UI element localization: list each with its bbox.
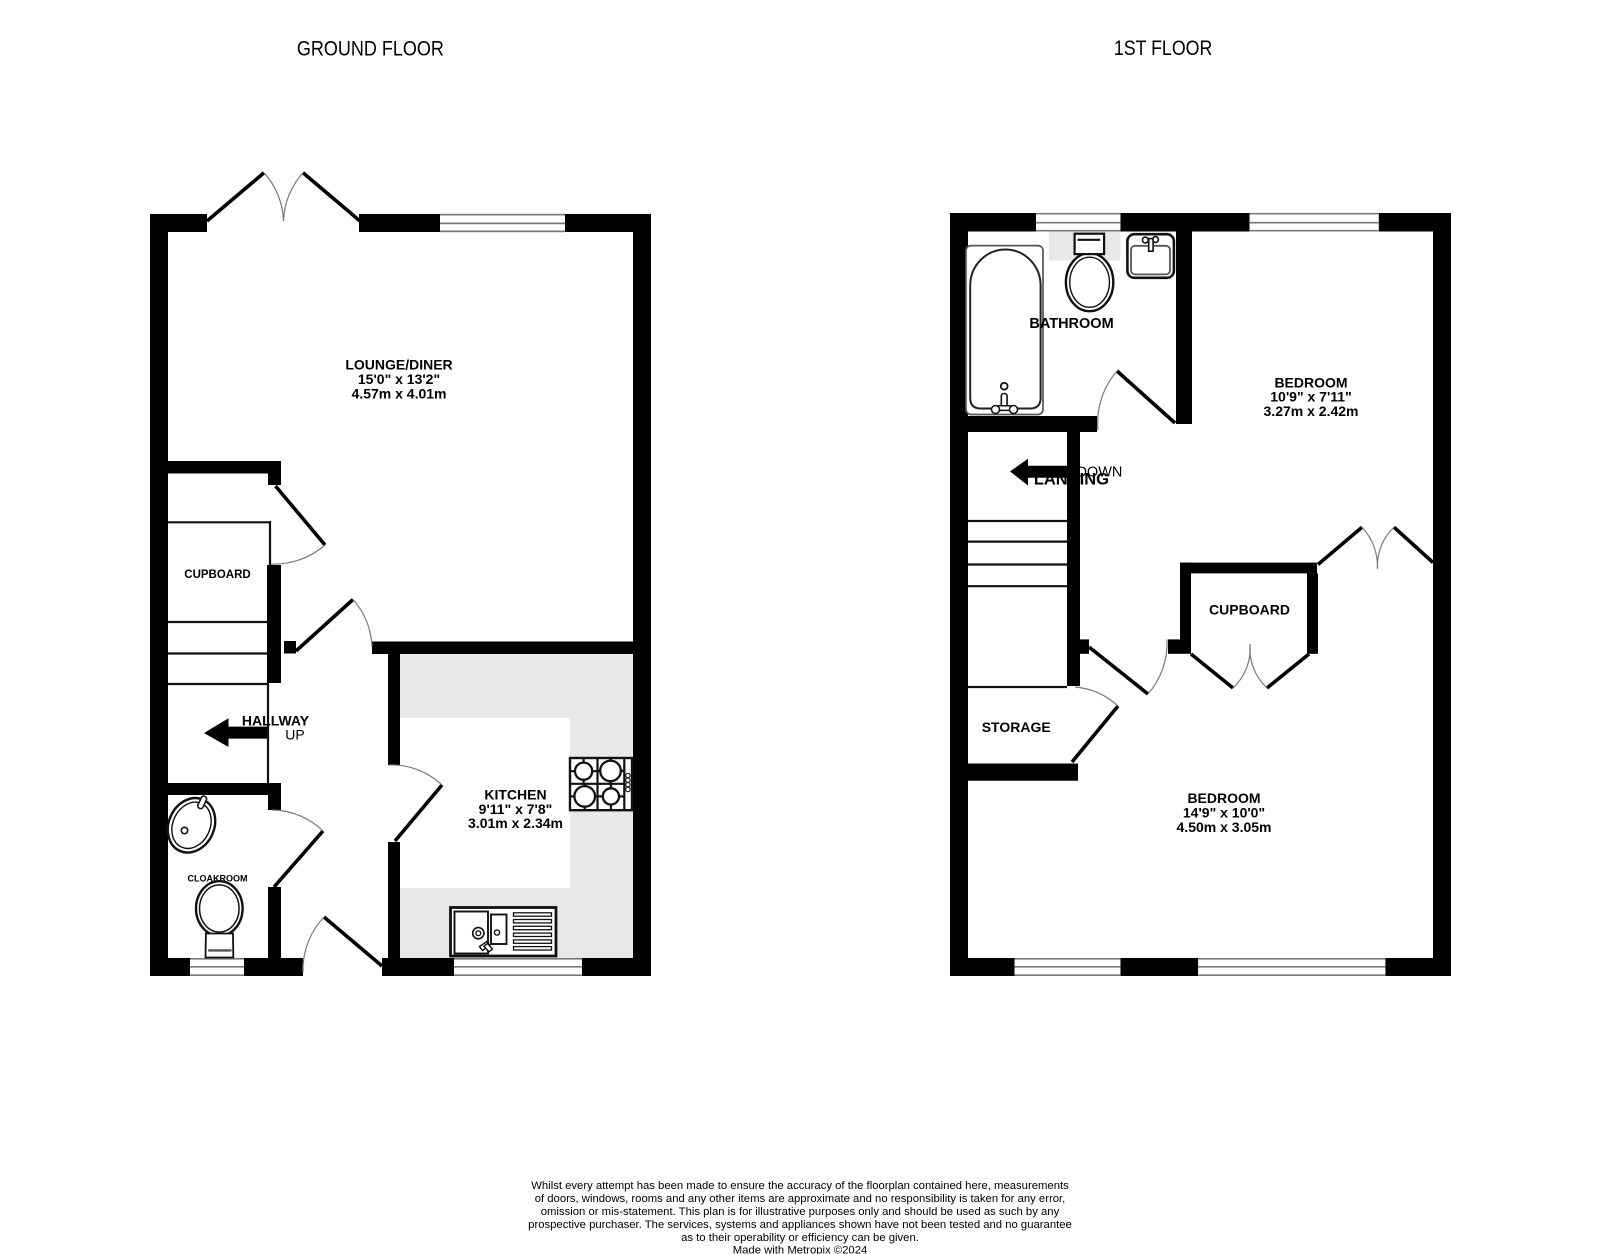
svg-text:3.01m x 2.34m: 3.01m x 2.34m bbox=[468, 815, 563, 831]
svg-text:omission or mis-statement. Thi: omission or mis-statement. This plan is … bbox=[541, 1206, 1060, 1218]
svg-text:Made with Metropix ©2024: Made with Metropix ©2024 bbox=[733, 1245, 868, 1254]
svg-text:CUPBOARD: CUPBOARD bbox=[184, 569, 250, 581]
svg-text:prospective purchaser. The ser: prospective purchaser. The services, sys… bbox=[528, 1219, 1072, 1231]
svg-text:STORAGE: STORAGE bbox=[982, 719, 1051, 735]
svg-text:BATHROOM: BATHROOM bbox=[1029, 316, 1113, 332]
svg-text:Whilst every attempt has been: Whilst every attempt has been made to en… bbox=[531, 1180, 1069, 1192]
svg-text:4.50m x 3.05m: 4.50m x 3.05m bbox=[1177, 819, 1272, 835]
svg-text:CUPBOARD: CUPBOARD bbox=[1209, 602, 1290, 618]
svg-text:DOWN: DOWN bbox=[1076, 464, 1122, 480]
svg-text:1ST FLOOR: 1ST FLOOR bbox=[1114, 36, 1212, 60]
svg-text:3.27m x 2.42m: 3.27m x 2.42m bbox=[1264, 403, 1359, 419]
svg-text:of doors, windows, rooms and a: of doors, windows, rooms and any other i… bbox=[535, 1193, 1066, 1205]
svg-text:UP: UP bbox=[285, 726, 304, 742]
svg-text:as to their operability or eff: as to their operability or efficiency ca… bbox=[681, 1232, 919, 1244]
svg-text:4.57m x 4.01m: 4.57m x 4.01m bbox=[352, 385, 447, 401]
svg-text:GROUND FLOOR: GROUND FLOOR bbox=[297, 37, 444, 61]
